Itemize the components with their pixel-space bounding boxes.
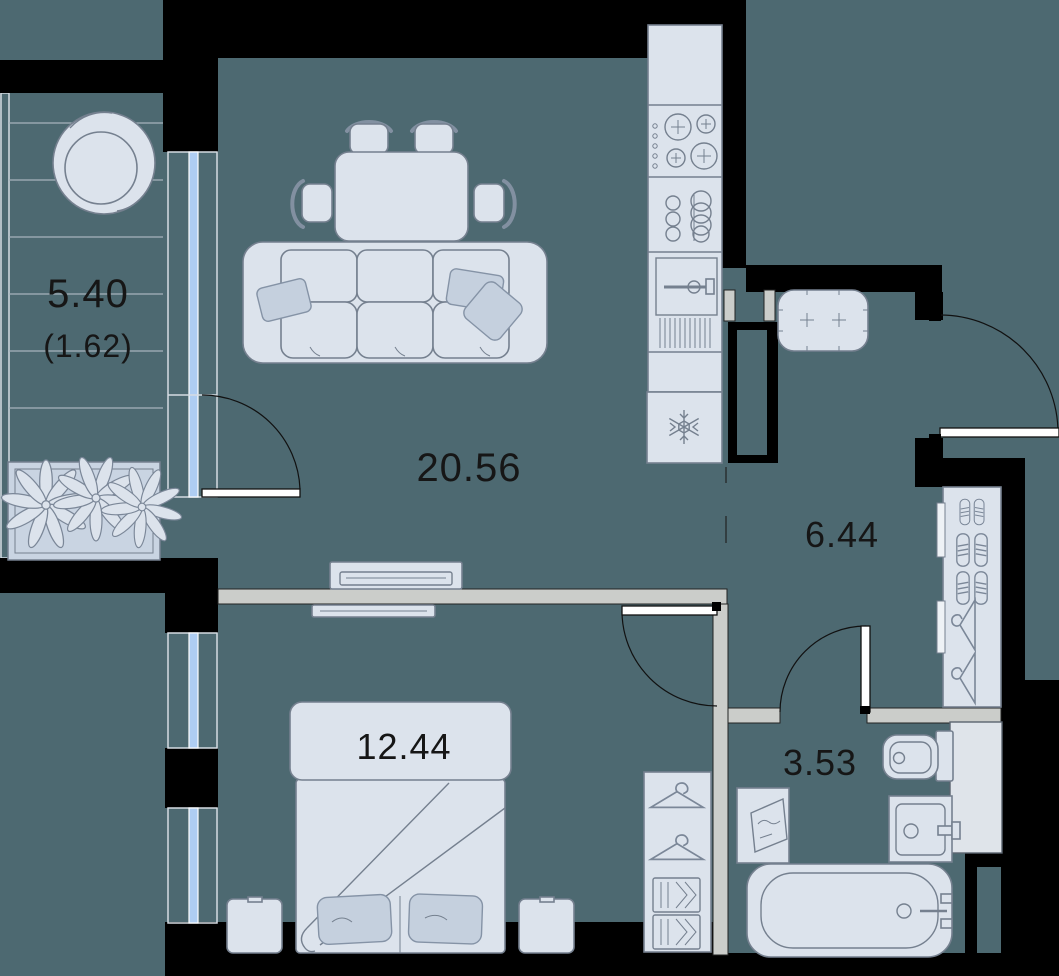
door-hinge <box>712 602 721 611</box>
chair-seat <box>302 184 332 222</box>
door-arc-icon <box>940 315 1058 433</box>
wardrobe-icon <box>644 772 711 952</box>
chair-seat <box>350 124 388 154</box>
balcony-area-reduced-label: (1.62) <box>43 328 133 364</box>
chair-seat <box>474 184 504 222</box>
door-leaf <box>861 626 870 712</box>
windows <box>168 152 217 923</box>
bathroom-area-label: 3.53 <box>783 742 857 783</box>
partition-bedroom-bath <box>713 604 728 955</box>
bedroom-door <box>622 602 721 706</box>
hallway-furniture <box>778 290 1001 707</box>
door-leaf <box>622 606 717 615</box>
wall-right-upper <box>722 0 746 268</box>
bed-pillow <box>317 894 392 945</box>
bathroom-fixtures <box>737 722 1002 957</box>
wall-closet-right <box>1001 487 1025 707</box>
chair-back <box>504 181 515 227</box>
bedroom-furniture <box>227 605 711 953</box>
wall-pier-below-balcony <box>165 593 218 633</box>
floor-plan: 5.40 (1.62) 20.56 6.44 12.44 3.53 <box>0 0 1059 976</box>
fridge-icon <box>647 392 722 463</box>
toilet-icon <box>883 731 953 781</box>
nightstand-handle <box>248 897 262 902</box>
sliding-door <box>937 503 945 557</box>
nightstand-handle <box>540 897 554 902</box>
bedroom-window-2-glass <box>189 808 198 923</box>
wall-bath-right-b <box>1001 707 1059 976</box>
sofa-seat-cushion <box>357 302 433 358</box>
floor-plan-drawing: 5.40 (1.62) 20.56 6.44 12.44 3.53 <box>0 0 1059 976</box>
wall-notch-left <box>965 867 977 955</box>
door-hinge <box>929 313 941 321</box>
nightstand <box>227 899 282 953</box>
washbasin-icon <box>889 796 960 862</box>
bedroom-window-1-glass <box>189 633 198 748</box>
sliding-door <box>937 601 945 653</box>
bathroom-door <box>780 626 870 714</box>
partition-kitchen-stub-a <box>724 290 735 321</box>
living-room-furniture <box>243 122 547 589</box>
doors <box>202 313 1059 714</box>
partition-living-bedroom <box>218 589 727 604</box>
balcony-area-label: 5.40 <box>47 272 129 316</box>
partition-bath-door-right <box>867 708 1001 723</box>
door-leaf <box>202 489 300 497</box>
hallway-area-label: 6.44 <box>805 514 879 555</box>
nightstand <box>519 899 574 953</box>
dining-table-icon <box>335 152 468 241</box>
partition-kitchen-stub-b <box>764 290 775 321</box>
door-arc-icon <box>622 611 717 706</box>
sofa-back-cushion <box>357 250 433 302</box>
shaft-cavity <box>737 330 767 455</box>
bedroom-area-label: 12.44 <box>356 726 451 767</box>
entry-closet <box>937 487 1001 707</box>
entry-door <box>929 313 1059 443</box>
wall-bath-right-a <box>1022 680 1059 707</box>
kitchen <box>647 25 722 463</box>
door-arc-icon <box>780 626 866 712</box>
wall-closet-top <box>943 458 1025 487</box>
wall-hall-top <box>746 265 942 292</box>
wall-duct-step <box>965 853 1001 867</box>
door-hinge <box>929 434 941 443</box>
wall-top-left-pier <box>163 0 218 152</box>
bathtub-icon <box>747 864 952 957</box>
living-area-label: 20.56 <box>416 446 521 490</box>
bedroom-wardrobe <box>644 772 711 952</box>
wall-balcony-bottom <box>0 558 218 593</box>
washer-icon <box>737 788 789 863</box>
wall-living-top <box>218 0 648 58</box>
wall-window-pier <box>165 748 218 808</box>
papasan-cushion <box>65 132 137 204</box>
door-hinge <box>860 706 870 714</box>
wall-balcony-top <box>0 60 163 93</box>
chair-seat <box>415 124 453 154</box>
door-leaf <box>940 428 1059 437</box>
wall-entry-jamb-lower <box>915 438 943 487</box>
balcony-window-glass <box>189 152 198 497</box>
ottoman-icon <box>778 290 868 351</box>
partition-bath-door-left <box>728 708 780 723</box>
